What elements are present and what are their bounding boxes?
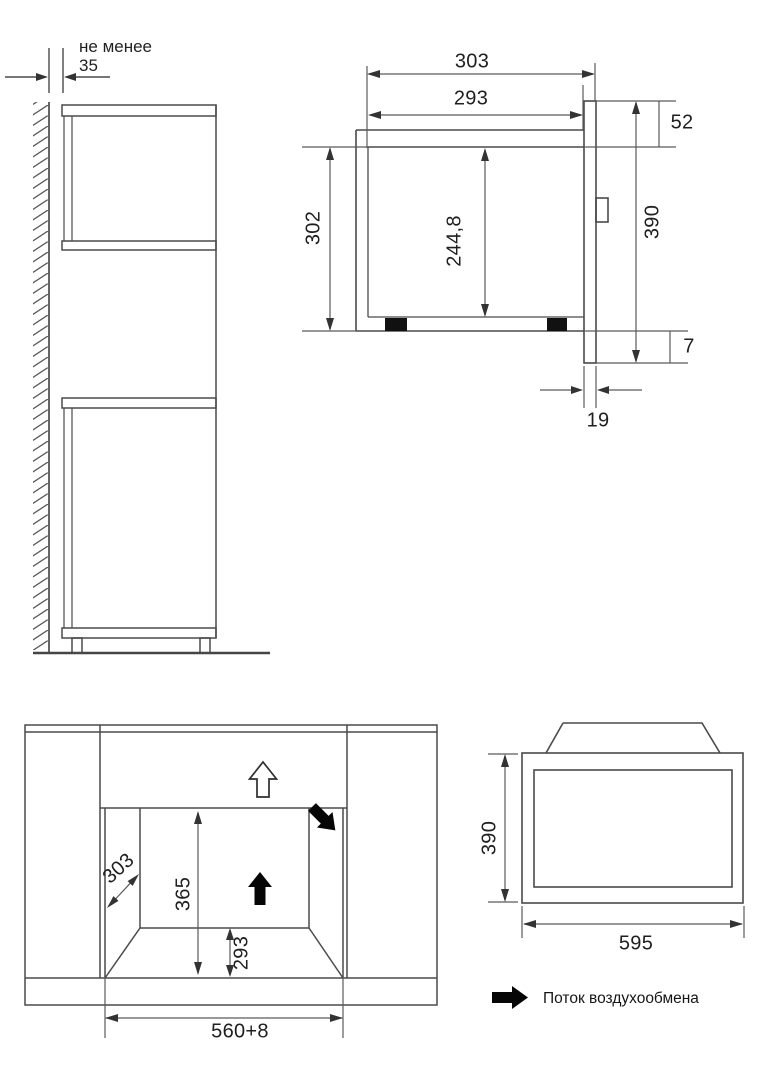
oven-front-dimensions: [488, 754, 744, 938]
dim-body-height: 302: [303, 211, 326, 245]
cabinet-foot: [200, 638, 210, 653]
dim-bottom-overhang: 7: [683, 336, 694, 359]
dim-lower-height: 293: [231, 936, 254, 970]
dim-door-thickness: 19: [587, 410, 610, 433]
cabinet-top-panel: [62, 105, 216, 116]
oven-front-view: [522, 723, 743, 903]
dim-front-height-side: 390: [642, 205, 665, 239]
oven-side-view: [356, 101, 608, 363]
dim-depth-overall: 303: [455, 51, 489, 74]
oven-front-door: [534, 770, 732, 887]
arrowhead: [64, 73, 76, 81]
door-handle: [596, 198, 608, 222]
oven-foot: [385, 318, 407, 331]
dim-front-width: 595: [619, 933, 653, 956]
dim-niche-width: 560+8: [211, 1021, 269, 1044]
legend-airflow-icon: [492, 986, 528, 1009]
cabinet-bottom-panel: [62, 628, 216, 638]
dim-depth-body: 293: [454, 88, 488, 111]
wall-hatching: [33, 102, 49, 650]
legend-airflow-label: Поток воздухообмена: [543, 990, 699, 1008]
cabinet-side-view: [62, 105, 216, 653]
oven-door-side: [584, 101, 596, 363]
oven-foot: [547, 318, 567, 331]
installation-diagram: не менее 35 303 293 52 302 244,8 390 7 1…: [0, 0, 774, 1090]
dim-front-height: 390: [479, 821, 502, 855]
cabinet-shelf-upper: [62, 241, 216, 250]
cabinet-foot: [72, 638, 82, 653]
oven-body-top: [546, 723, 720, 753]
dim-opening-height: 365: [173, 877, 196, 911]
airflow-out-diagonal-icon: [304, 799, 343, 838]
oven-side-dimensions: [302, 63, 688, 408]
clearance-note-value: 35: [79, 56, 98, 76]
oven-front-frame: [522, 753, 743, 903]
arrowhead: [36, 73, 48, 81]
cabinet-shelf-lower: [62, 398, 216, 408]
dim-top-clearance: 52: [671, 112, 694, 135]
wall-clearance-view: [5, 48, 270, 653]
airflow-up-icon: [248, 872, 272, 905]
dim-inner-height: 244,8: [444, 215, 467, 267]
diagram-drawing: [0, 0, 774, 1090]
clearance-note-line1: не менее: [79, 37, 152, 57]
airflow-up-outline-icon: [250, 762, 277, 797]
